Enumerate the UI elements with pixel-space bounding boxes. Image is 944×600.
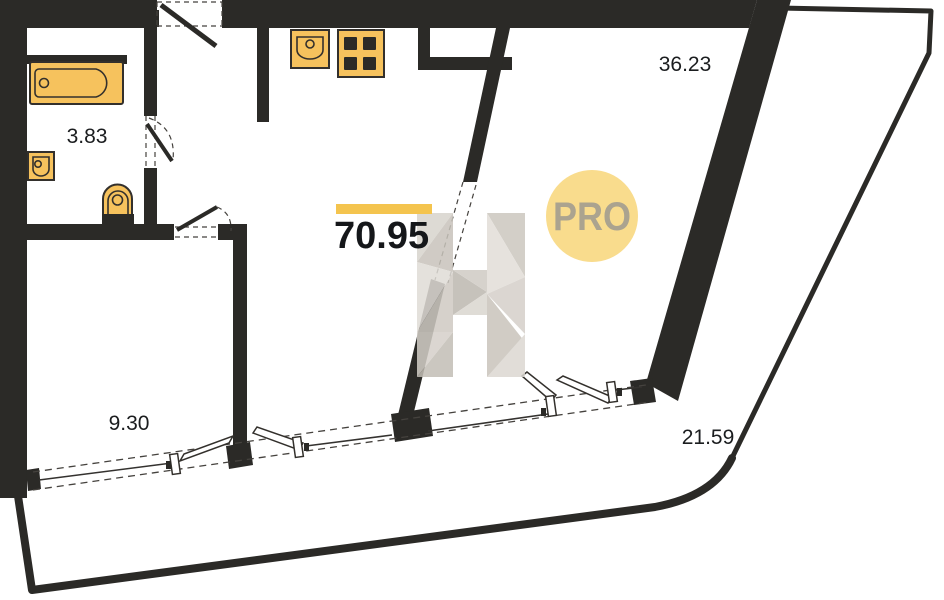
wall-left: [0, 0, 27, 498]
window-hinge-2: [304, 443, 309, 451]
pro-badge-text: PRO: [553, 195, 631, 239]
window-hinge-1: [166, 461, 171, 469]
wall-bathroom-right-lower: [144, 168, 157, 226]
floor-plan-canvas: 3.83 9.30 36.23 21.59 70.95 PRO: [0, 0, 944, 600]
wall-kitchen-partition: [257, 28, 269, 122]
area-label-living: 36.23: [659, 53, 712, 76]
stove-burner: [344, 37, 357, 50]
window-post-1: [170, 454, 181, 475]
toilet: [102, 185, 134, 230]
wall-room-top: [218, 224, 247, 240]
kitchen-sink: [291, 30, 329, 68]
area-label-bathroom: 3.83: [67, 125, 108, 148]
bathtub: [30, 62, 123, 104]
window-hinge-4: [617, 388, 622, 396]
toilet-tank: [102, 214, 134, 230]
window-post-3: [546, 396, 557, 417]
bathroom-door-leaf: [147, 124, 172, 161]
wall-room-right: [233, 240, 247, 448]
wall-bathroom-right-upper: [144, 28, 157, 116]
wall-bathroom-bottom: [27, 224, 174, 240]
pier-middle: [226, 442, 253, 469]
window-post-4: [607, 382, 618, 403]
pier-center: [391, 408, 433, 442]
area-label-room: 9.30: [109, 412, 150, 435]
entrance-opening-dashes: [157, 2, 222, 26]
area-label-terrace: 21.59: [682, 426, 735, 449]
h-watermark: [417, 213, 525, 377]
total-area-label: 70.95: [334, 215, 429, 257]
bathroom-opening-dashes: [146, 116, 155, 167]
stove-burner: [363, 57, 376, 70]
washbasin: [28, 152, 54, 180]
stove: [338, 30, 384, 77]
pier-right: [630, 378, 656, 405]
bathroom-door-arc: [149, 118, 173, 160]
wall-top-main: [222, 0, 757, 28]
window-line-3: [428, 414, 548, 431]
window-hinge-3: [541, 408, 546, 416]
terrace-boundary-bottom: [18, 458, 732, 590]
stove-burner: [363, 37, 376, 50]
wall-diagonal-upper: [463, 28, 510, 182]
entrance-jamb: [151, 10, 159, 27]
stove-burner: [344, 57, 357, 70]
window-line-1: [39, 463, 172, 480]
total-area-highlight-bar: [336, 204, 432, 214]
floor-plan: 3.83 9.30 36.23 21.59 70.95 PRO: [0, 0, 944, 600]
window-sash-1: [180, 436, 233, 461]
window-post-2: [293, 437, 304, 458]
pro-badge: PRO: [546, 170, 638, 262]
window-sash-4: [557, 376, 612, 403]
